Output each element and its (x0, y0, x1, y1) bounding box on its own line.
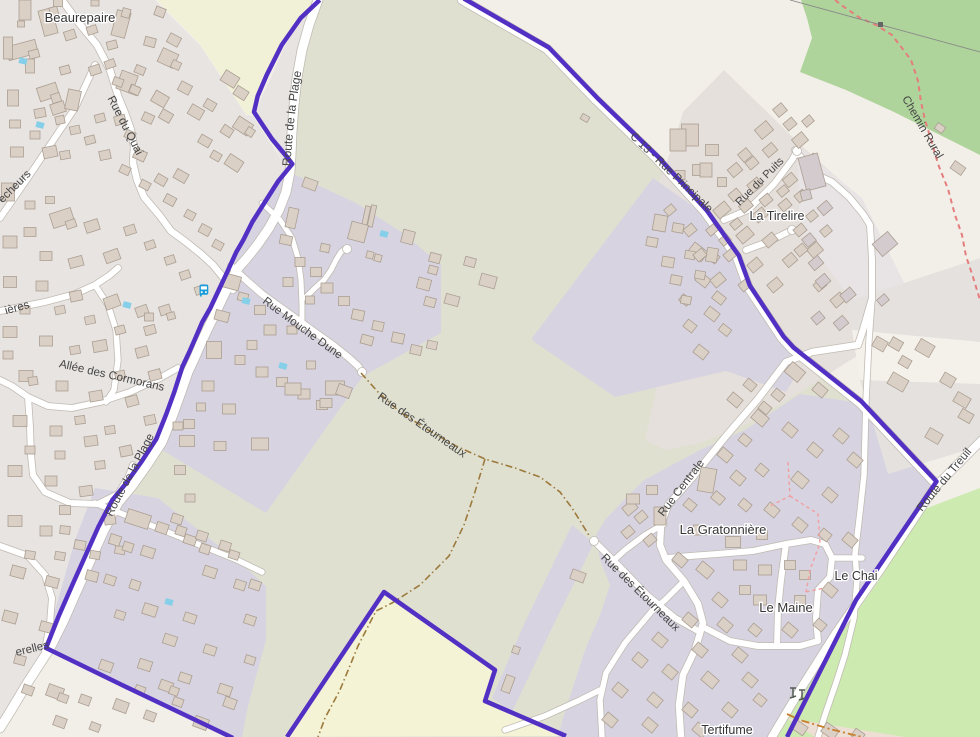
svg-text:Le Maine: Le Maine (759, 600, 812, 615)
svg-text:Le Chai: Le Chai (834, 569, 877, 583)
svg-text:La Tirelire: La Tirelire (750, 209, 805, 223)
svg-text:La Gratonnière: La Gratonnière (680, 522, 767, 537)
svg-text:Tertifume: Tertifume (701, 723, 752, 737)
svg-text:Beaurepaire: Beaurepaire (45, 10, 116, 25)
